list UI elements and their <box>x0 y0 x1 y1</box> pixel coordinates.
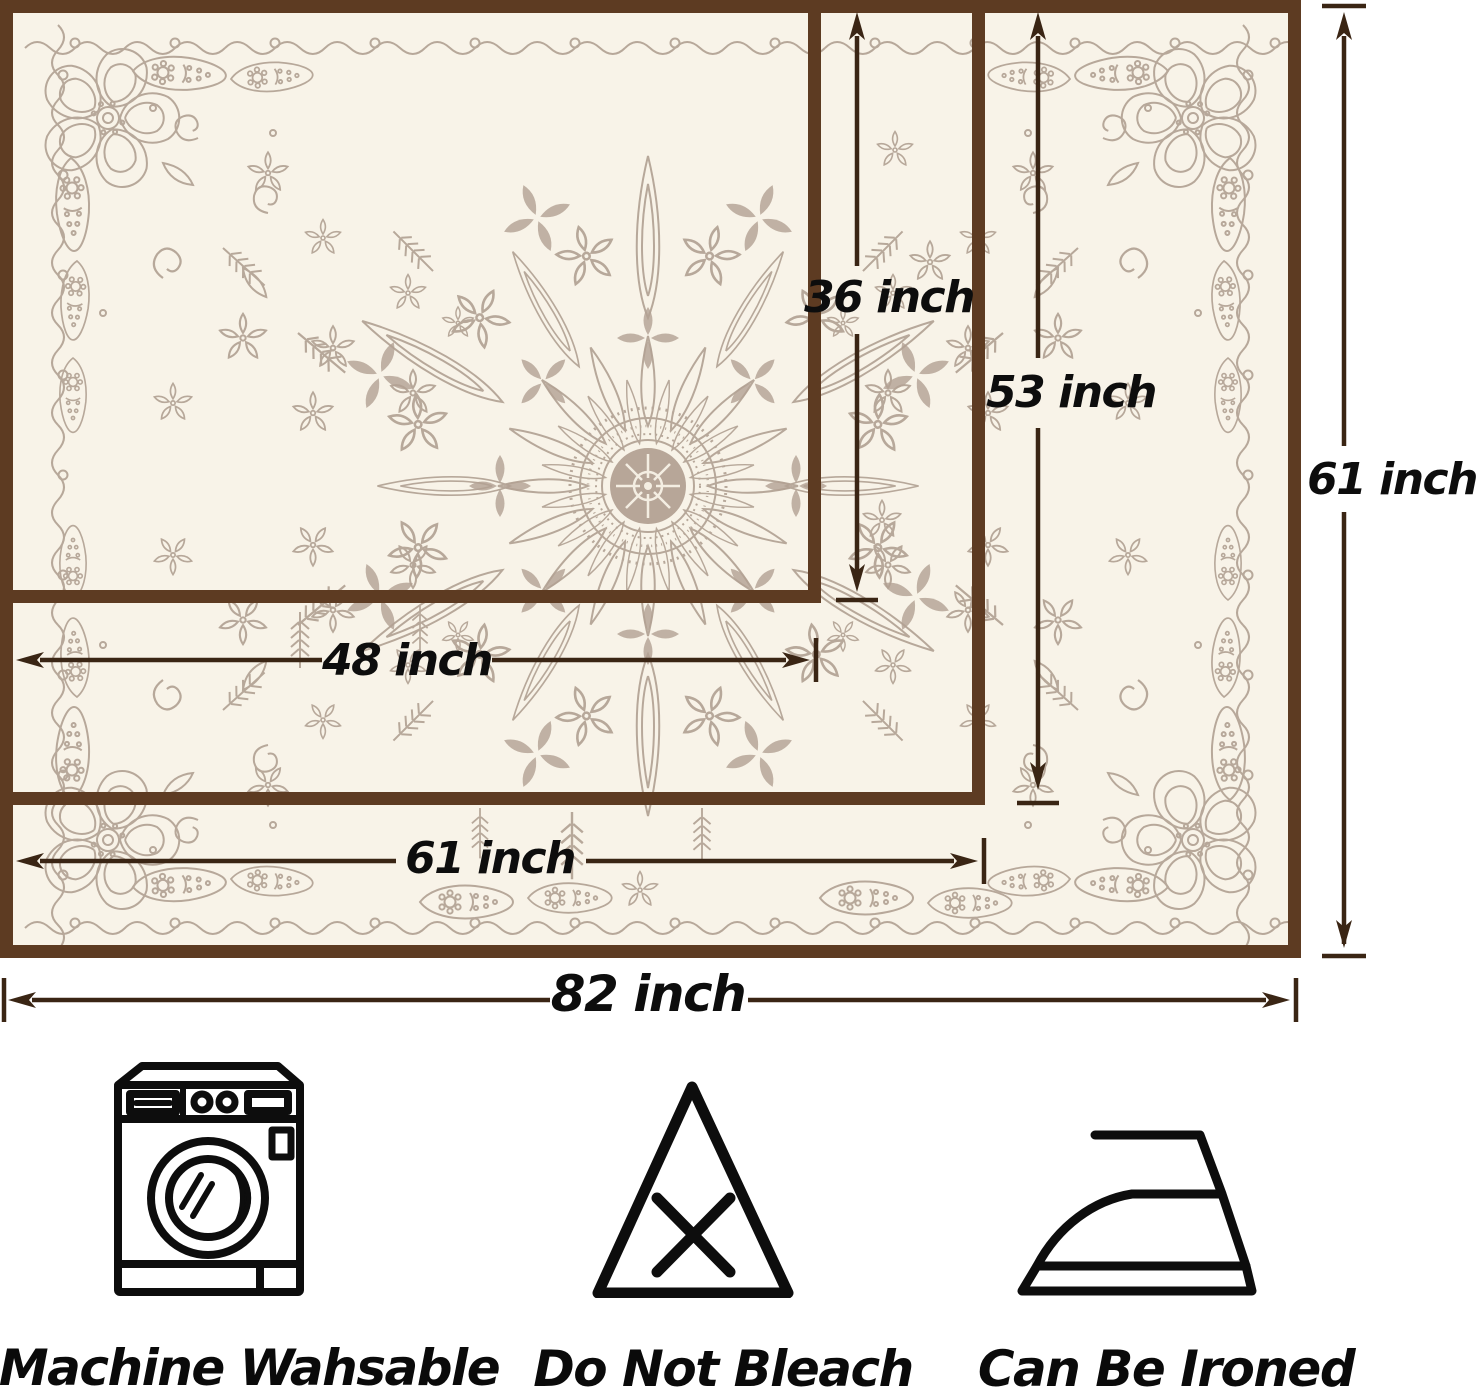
care-label-can-be-ironed: Can Be Ironed <box>978 1344 1354 1394</box>
iron-icon <box>1010 1120 1260 1305</box>
tablecloth-size-diagram: 36 inch 53 inch 61 inch 48 inch 61 inch … <box>0 0 1479 1398</box>
care-label-do-not-bleach: Do Not Bleach <box>533 1344 912 1394</box>
dimension-label-outer-width: 82 inch <box>551 969 745 1019</box>
do-not-bleach-icon <box>580 1076 800 1298</box>
dimension-label-middle-height: 53 inch <box>986 371 1156 415</box>
dimension-label-middle-width: 61 inch <box>405 837 575 881</box>
washing-machine-icon <box>108 1058 308 1298</box>
dimension-label-inner-width: 48 inch <box>322 639 492 683</box>
tablecloth-pattern <box>13 13 1425 1025</box>
dimension-label-outer-height: 61 inch <box>1307 458 1477 502</box>
care-label-machine-washable: Machine Wahsable <box>0 1343 499 1393</box>
dimension-label-inner-height: 36 inch <box>804 276 974 320</box>
